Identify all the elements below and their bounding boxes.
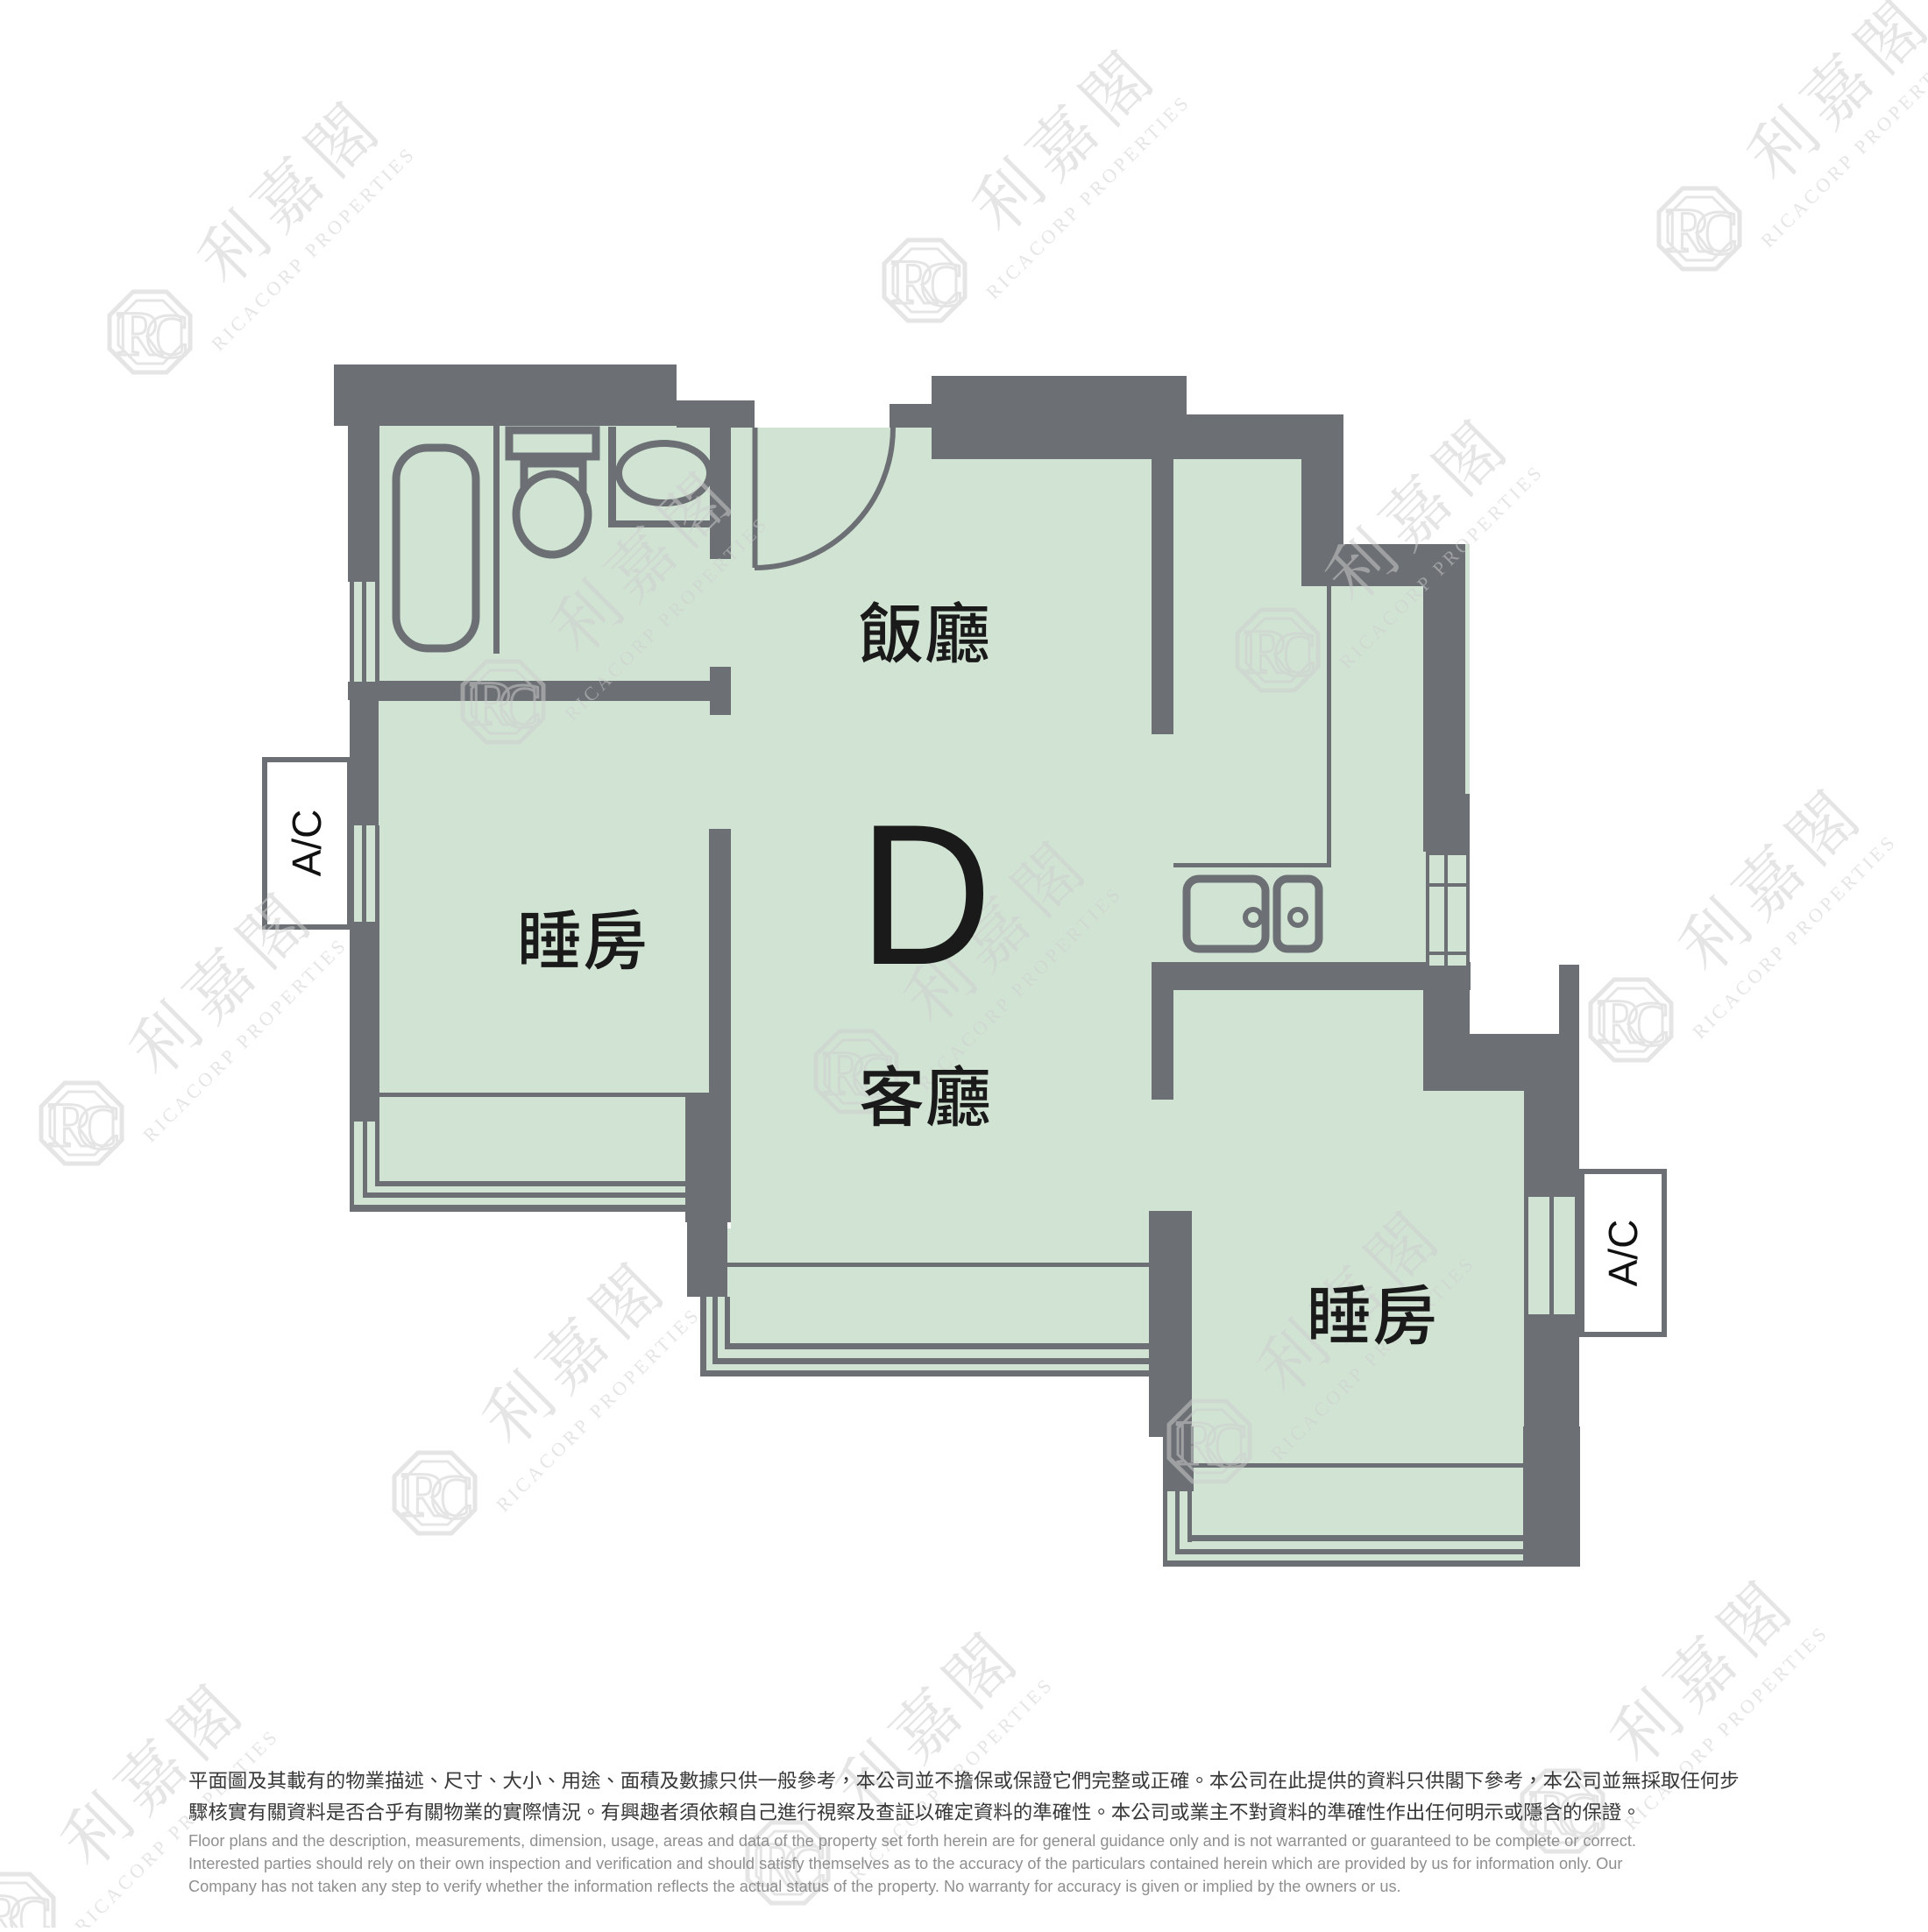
svg-text:C: C	[145, 301, 190, 372]
svg-text:Floor plans and the descriptio: Floor plans and the description, measure…	[188, 1832, 1636, 1850]
svg-text:Interested parties should rely: Interested parties should rely on their …	[188, 1855, 1622, 1872]
svg-text:D: D	[859, 782, 992, 1007]
svg-text:C: C	[1626, 989, 1671, 1059]
svg-text:A/C: A/C	[1600, 1220, 1646, 1287]
svg-text:C: C	[498, 671, 543, 741]
svg-text:C: C	[8, 1884, 53, 1928]
svg-text:C: C	[1272, 619, 1318, 690]
svg-text:C: C	[76, 1093, 122, 1163]
svg-text:A/C: A/C	[284, 810, 330, 877]
svg-text:C: C	[429, 1462, 475, 1532]
svg-text:C: C	[919, 250, 965, 320]
svg-text:C: C	[1204, 1411, 1250, 1481]
svg-text:C: C	[1694, 198, 1740, 268]
svg-text:Company has not taken any step: Company has not taken any step to verify…	[188, 1878, 1401, 1895]
